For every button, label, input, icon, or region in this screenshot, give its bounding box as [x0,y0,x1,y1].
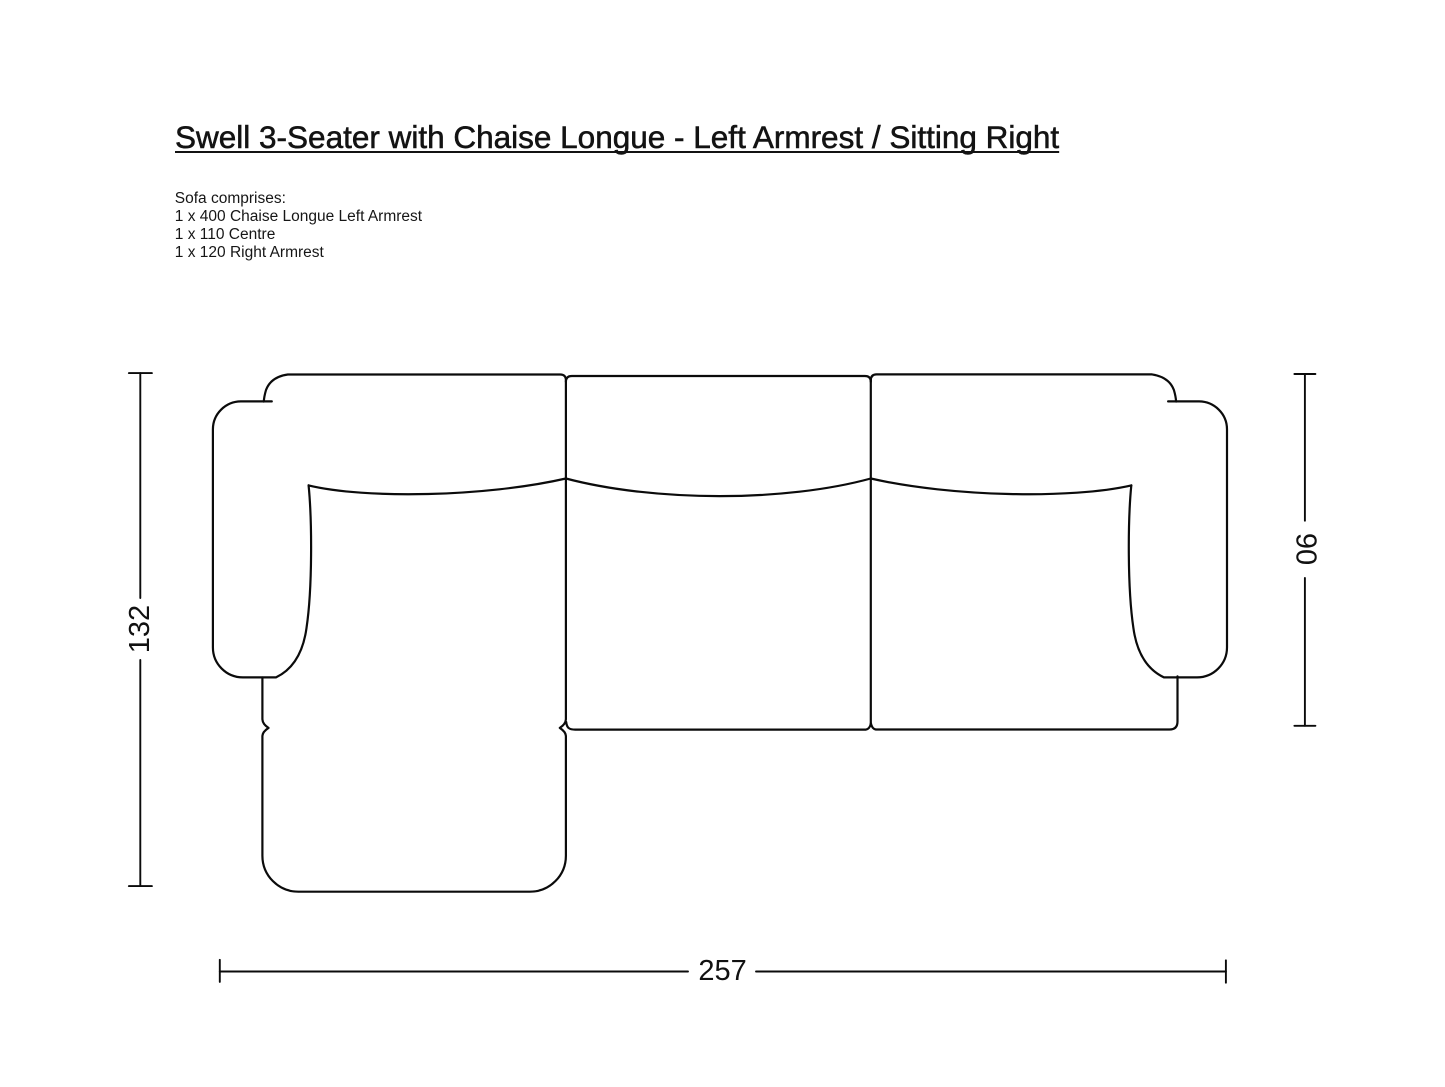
svg-text:257: 257 [698,955,746,987]
svg-text:132: 132 [124,605,156,653]
svg-text:90: 90 [1290,533,1322,565]
